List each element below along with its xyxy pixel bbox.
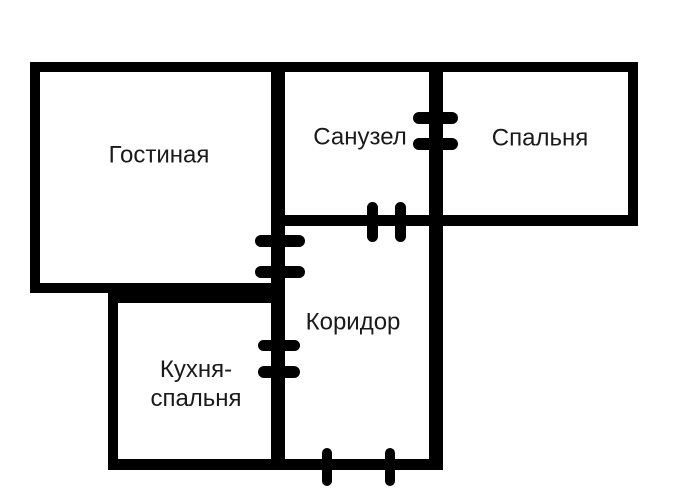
room-label-bathroom: Санузел: [313, 123, 407, 152]
room-label-kitchen-bedroom: Кухня- спальня: [150, 355, 241, 413]
door-bathroom-bedroom-tick-2: [413, 138, 458, 150]
room-label-living-room: Гостиная: [109, 141, 210, 170]
kitchen-top-wall: [108, 293, 285, 303]
living-room-bottom-wall: [30, 283, 285, 293]
door-corridor-entrance-tick-1: [322, 448, 332, 486]
room-label-bedroom: Спальня: [492, 124, 588, 153]
door-living-room-corridor-tick-1: [255, 235, 305, 247]
outer-top-wall: [30, 62, 638, 72]
door-bathroom-bedroom-tick-1: [413, 112, 458, 124]
room-label-corridor: Коридор: [306, 308, 401, 337]
door-kitchen-corridor-tick-2: [258, 366, 300, 378]
door-bathroom-corridor-tick-2: [395, 202, 406, 242]
door-corridor-entrance-tick-2: [385, 448, 395, 486]
door-living-room-corridor-tick-2: [255, 266, 305, 278]
door-bathroom-corridor-tick-1: [367, 202, 378, 242]
living-room-left-wall: [30, 62, 40, 293]
kitchen-left-wall: [108, 293, 118, 469]
door-kitchen-corridor-tick-1: [258, 340, 300, 351]
bedroom-right-wall: [628, 62, 638, 226]
floor-plan: Гостиная Санузел Спальня Коридор Кухня- …: [0, 0, 700, 503]
bathroom-bedroom-bottom-wall: [271, 215, 638, 226]
